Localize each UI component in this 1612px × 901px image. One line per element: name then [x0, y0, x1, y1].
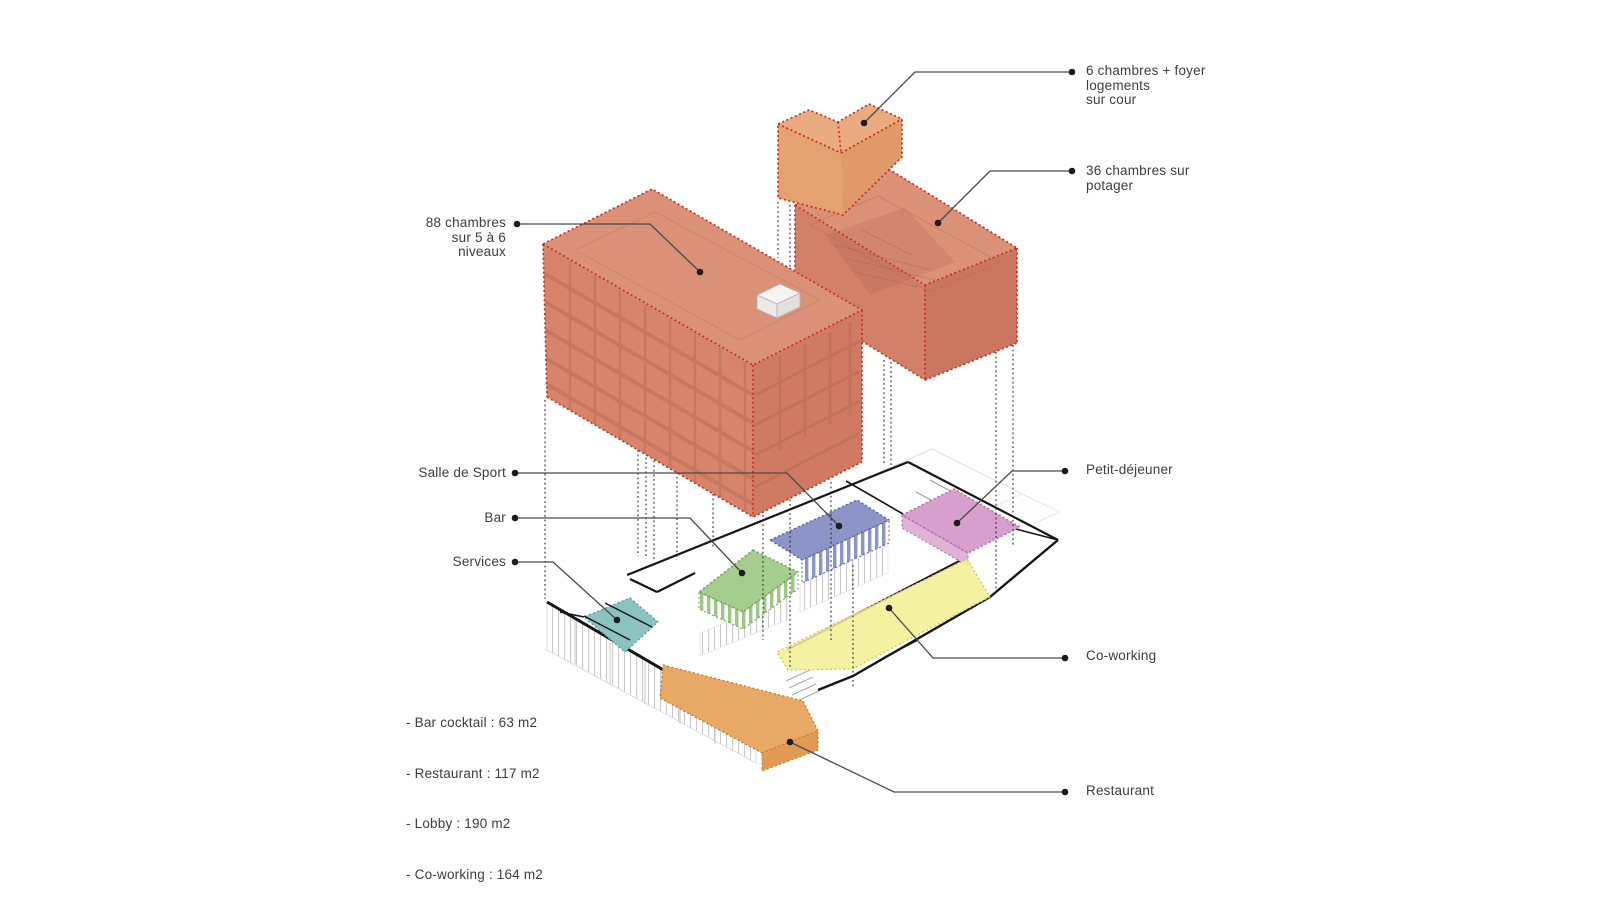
surface-area-list: - Bar cocktail : 63 m2 - Restaurant : 11…: [406, 681, 570, 901]
label-line: sur 5 à 6: [336, 231, 506, 246]
label-bar: Bar: [336, 511, 506, 526]
area-item: - Co-working : 164 m2: [406, 867, 570, 884]
label-line: 36 chambres sur: [1086, 164, 1190, 179]
label-line: niveaux: [336, 245, 506, 260]
label-petit-dejeuner: Petit-déjeuner: [1086, 463, 1173, 478]
label-36-chambres: 36 chambres sur potager: [1086, 164, 1190, 193]
axonometric-drawing: [0, 0, 1612, 901]
label-88-chambres: 88 chambres sur 5 à 6 niveaux: [336, 216, 506, 260]
label-line: potager: [1086, 179, 1190, 194]
program-axonometric-diagram: 6 chambres + foyer logements sur cour 36…: [0, 0, 1612, 901]
area-item: - Restaurant : 117 m2: [406, 766, 570, 783]
label-line: logements: [1086, 79, 1206, 94]
label-services: Services: [336, 555, 506, 570]
area-item: - Lobby : 190 m2: [406, 816, 570, 833]
label-salle-de-sport: Salle de Sport: [336, 466, 506, 481]
leader-restaurant: [790, 742, 1065, 792]
label-line: sur cour: [1086, 93, 1206, 108]
label-restaurant: Restaurant: [1086, 784, 1154, 799]
label-line: 6 chambres + foyer: [1086, 64, 1206, 79]
area-item: - Bar cocktail : 63 m2: [406, 715, 570, 732]
label-coworking: Co-working: [1086, 649, 1156, 664]
label-line: 88 chambres: [336, 216, 506, 231]
label-6-chambres-foyer: 6 chambres + foyer logements sur cour: [1086, 64, 1206, 108]
